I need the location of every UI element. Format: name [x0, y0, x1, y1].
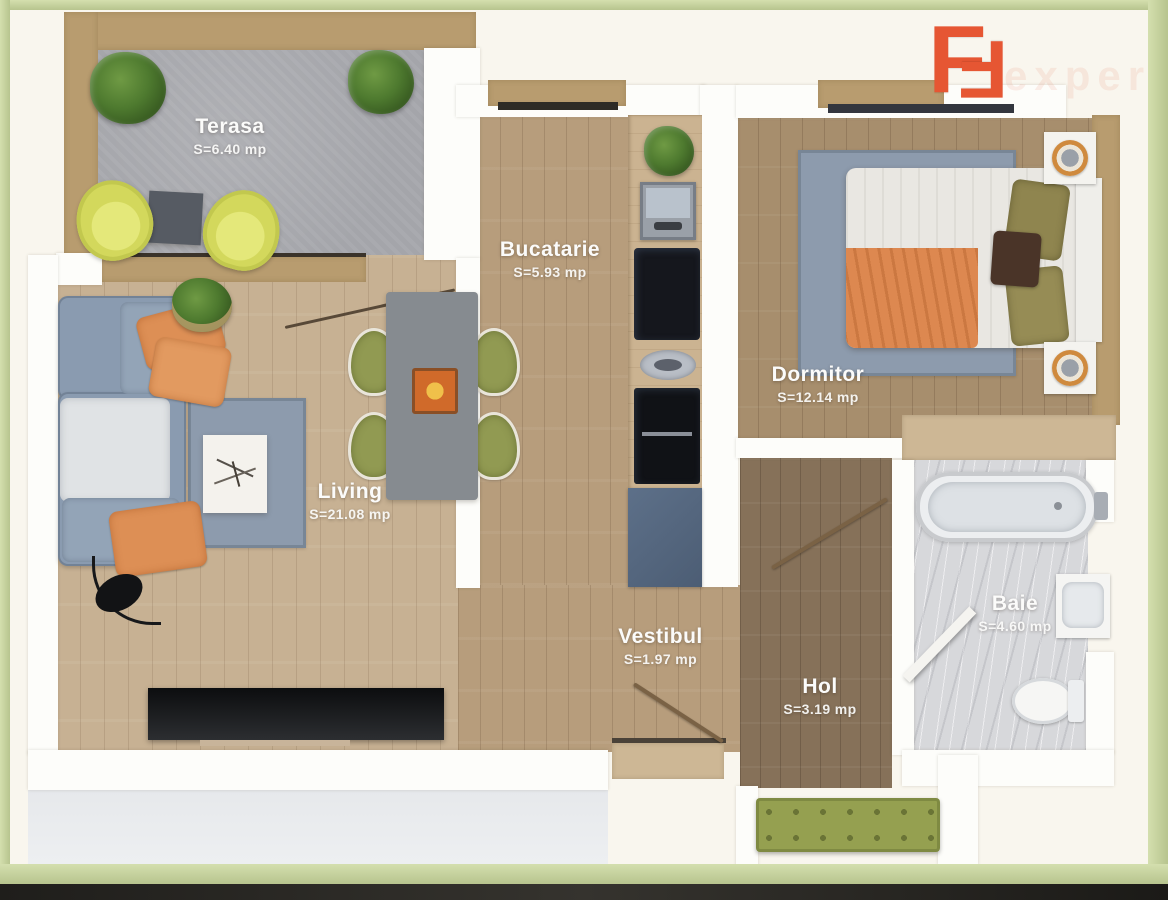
room-label-vestibul: Vestibul S=1.97 mp [578, 625, 743, 669]
kitchen-window-frame [498, 102, 618, 110]
bathroom-right-wall-bottom [1086, 652, 1114, 754]
room-area-living: S=21.08 mp [270, 504, 430, 524]
kitchen-microwave-handle [654, 222, 682, 230]
room-name-terasa: Terasa [150, 115, 310, 139]
bed-orange-blanket [846, 248, 978, 348]
frame-border-left [0, 0, 10, 884]
terrace-right-wall [424, 48, 480, 260]
living-terrace-corner-wall [56, 253, 102, 285]
room-label-dormitor: Dormitor S=12.14 mp [738, 363, 898, 407]
nightstand-lamp-top [1052, 140, 1088, 176]
living-bottom-wall [28, 750, 608, 790]
kitchen-plant [644, 126, 694, 176]
hall-bottom-wall-left [736, 786, 758, 872]
room-name-baie: Baie [935, 592, 1095, 616]
living-left-wall [28, 255, 58, 755]
room-area-hol: S=3.19 mp [740, 699, 900, 719]
tv-console [148, 688, 444, 740]
terrace-table [147, 191, 204, 246]
toilet-bowl [1012, 678, 1074, 724]
sofa-white-throw [60, 398, 170, 502]
bed-pillow-dark [990, 230, 1042, 287]
nightstand-lamp-bottom [1052, 350, 1088, 386]
kitchen-sink [640, 350, 696, 380]
toilet-tank [1068, 680, 1084, 722]
entrance-doormat [612, 743, 724, 779]
room-area-dormitor: S=12.14 mp [738, 387, 898, 407]
tv-console-shelf [200, 740, 350, 746]
bathtub-drain [1054, 502, 1062, 510]
image-bottom-dark-strip [0, 884, 1168, 900]
floor-plan-image: Terasa S=6.40 mp Bucatarie S=5.93 mp Dor… [0, 0, 1168, 900]
frame-border-right [1148, 0, 1168, 884]
kitchen-microwave [640, 182, 696, 240]
room-area-terasa: S=6.40 mp [150, 139, 310, 159]
kitchen-sink-basin [654, 359, 682, 371]
bathtub-tap [1094, 492, 1108, 520]
room-area-bucatarie: S=5.93 mp [460, 262, 640, 282]
terrace-top-wall [64, 12, 476, 50]
exterior-area-bottom-left [28, 788, 608, 872]
terrace-bush-left [90, 52, 166, 124]
coffee-table [203, 435, 267, 513]
kitchen-oven [634, 388, 700, 484]
bedroom-bottom-wall [736, 438, 908, 458]
bathroom-bottom-wall [902, 750, 1114, 786]
room-name-bucatarie: Bucatarie [460, 238, 640, 262]
kitchen-cooktop [634, 248, 700, 340]
bathtub [916, 472, 1098, 542]
kitchen-oven-bar [642, 432, 692, 436]
room-name-dormitor: Dormitor [738, 363, 898, 387]
room-label-baie: Baie S=4.60 mp [935, 592, 1095, 636]
room-label-bucatarie: Bucatarie S=5.93 mp [460, 238, 640, 282]
kitchen-cabinet-blue [628, 488, 702, 587]
hall-bottom-wall-right [938, 755, 978, 865]
room-name-living: Living [270, 480, 430, 504]
brand-watermark-text: expert [1004, 52, 1168, 100]
room-name-hol: Hol [740, 675, 900, 699]
kitchen-microwave-glass [646, 188, 690, 218]
kitchen-bedroom-wall [700, 85, 738, 587]
fruit-tray [412, 368, 458, 414]
frame-border-top [0, 0, 1168, 10]
frame-border-bottom [0, 864, 1168, 884]
terrace-bush-right [348, 50, 414, 114]
room-area-vestibul: S=1.97 mp [578, 649, 743, 669]
hall-bench [756, 798, 940, 852]
bed-headboard [1076, 178, 1102, 342]
room-area-baie: S=4.60 mp [935, 616, 1095, 636]
sofa-pillow-2 [147, 336, 232, 408]
room-label-terasa: Terasa S=6.40 mp [150, 115, 310, 159]
room-label-hol: Hol S=3.19 mp [740, 675, 900, 719]
room-label-living: Living S=21.08 mp [270, 480, 430, 524]
bedroom-closet [902, 415, 1116, 460]
room-name-vestibul: Vestibul [578, 625, 743, 649]
brand-logo-letter-f-mirrored: F [958, 36, 1008, 102]
living-plant-basket [172, 278, 232, 332]
bathtub-basin [928, 482, 1086, 532]
